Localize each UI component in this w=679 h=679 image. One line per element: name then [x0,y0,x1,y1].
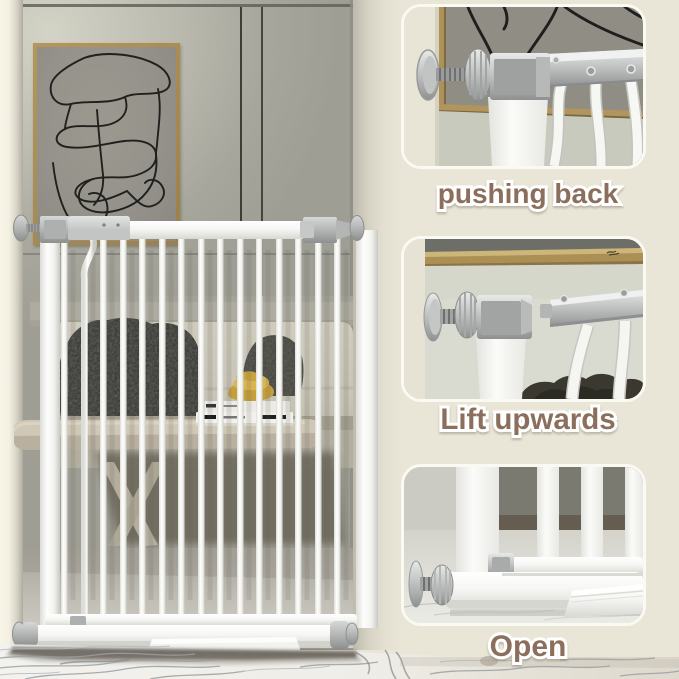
svg-text:Lift upwards: Lift upwards [440,403,615,436]
svg-text:pushing back: pushing back [438,178,619,209]
svg-text:Open: Open [490,630,567,663]
